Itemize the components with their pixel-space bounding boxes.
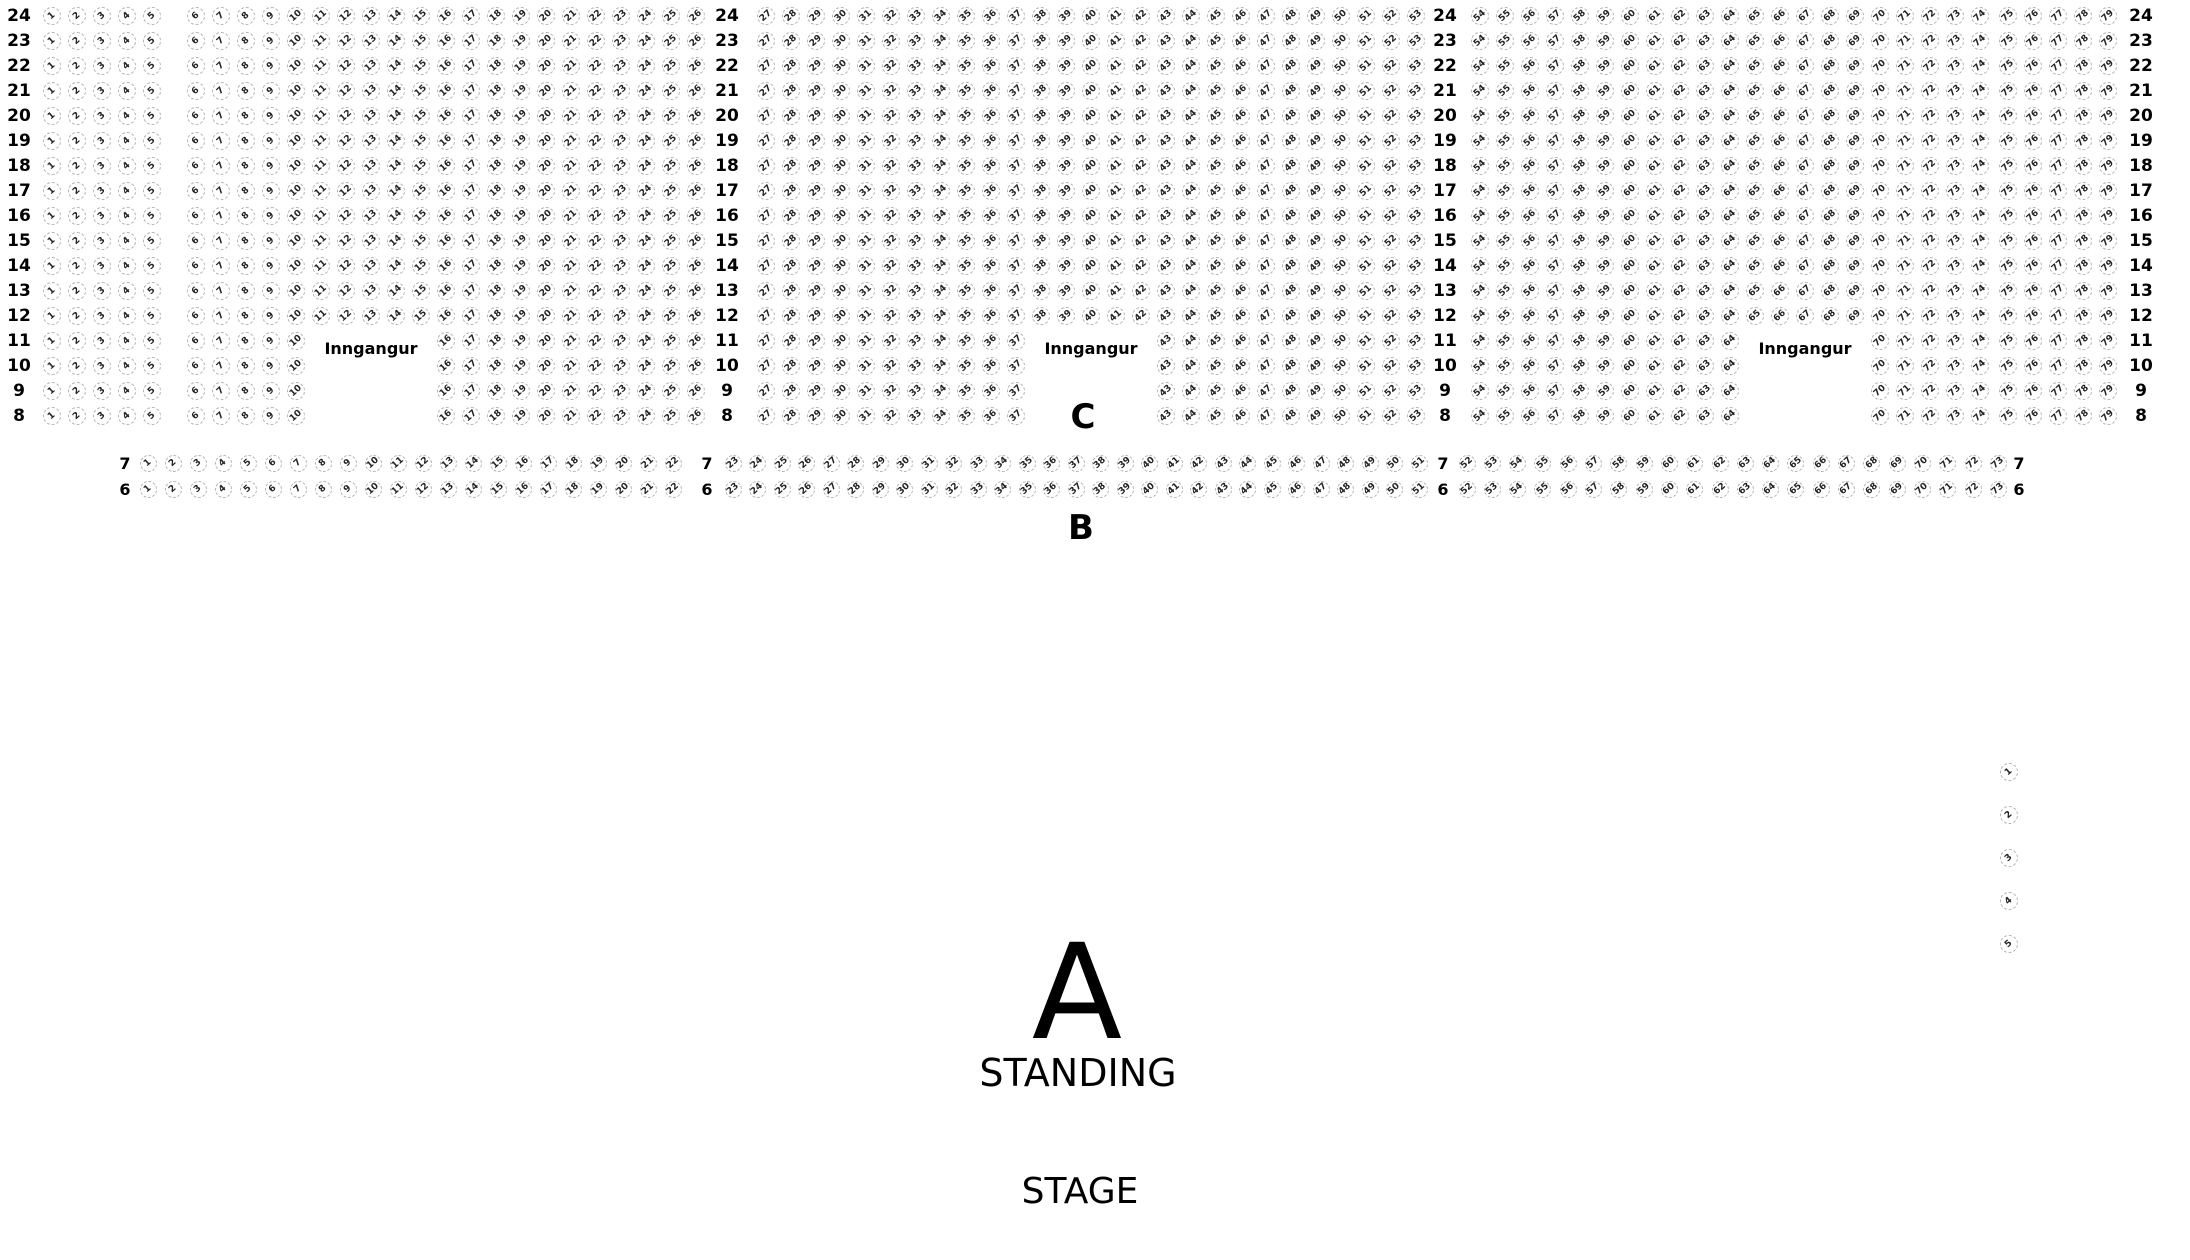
seat[interactable]: 65 xyxy=(1746,307,1764,325)
seat[interactable]: 26 xyxy=(687,182,705,200)
seat[interactable]: 37 xyxy=(1007,157,1025,175)
seat[interactable]: 45 xyxy=(1207,357,1225,375)
seat[interactable]: 72 xyxy=(1921,157,1939,175)
seat[interactable]: 25 xyxy=(662,182,680,200)
seat[interactable]: 9 xyxy=(262,182,280,200)
seat[interactable]: 43 xyxy=(1157,307,1175,325)
seat[interactable]: 17 xyxy=(540,455,557,472)
seat[interactable]: 6 xyxy=(187,32,205,50)
seat[interactable]: 3 xyxy=(93,207,111,225)
seat[interactable]: 34 xyxy=(932,232,950,250)
seat[interactable]: 59 xyxy=(1596,107,1614,125)
seat[interactable]: 41 xyxy=(1107,232,1125,250)
seat[interactable]: 69 xyxy=(1846,57,1864,75)
seat[interactable]: 53 xyxy=(1407,332,1425,350)
seat[interactable]: 66 xyxy=(1771,107,1789,125)
seat[interactable]: 15 xyxy=(412,32,430,50)
seat[interactable]: 24 xyxy=(637,307,655,325)
seat[interactable]: 65 xyxy=(1746,7,1764,25)
seat[interactable]: 25 xyxy=(662,282,680,300)
seat[interactable]: 27 xyxy=(757,407,775,425)
seat[interactable]: 73 xyxy=(1946,182,1964,200)
seat[interactable]: 39 xyxy=(1057,232,1075,250)
seat[interactable]: 77 xyxy=(2049,332,2067,350)
seat[interactable]: 7 xyxy=(212,232,230,250)
seat[interactable]: 52 xyxy=(1459,481,1476,498)
seat[interactable]: 12 xyxy=(337,307,355,325)
seat[interactable]: 32 xyxy=(882,107,900,125)
seat[interactable]: 23 xyxy=(612,207,630,225)
seat[interactable]: 56 xyxy=(1521,157,1539,175)
seat[interactable]: 4 xyxy=(118,132,136,150)
seat[interactable]: 53 xyxy=(1484,455,1501,472)
seat[interactable]: 19 xyxy=(512,57,530,75)
seat[interactable]: 71 xyxy=(1896,282,1914,300)
seat[interactable]: 76 xyxy=(2024,107,2042,125)
seat[interactable]: 48 xyxy=(1282,57,1300,75)
seat[interactable]: 75 xyxy=(1999,357,2017,375)
seat[interactable]: 10 xyxy=(287,7,305,25)
seat[interactable]: 49 xyxy=(1307,182,1325,200)
seat[interactable]: 22 xyxy=(665,455,682,472)
seat[interactable]: 27 xyxy=(757,207,775,225)
seat[interactable]: 4 xyxy=(118,157,136,175)
seat[interactable]: 36 xyxy=(982,7,1000,25)
seat[interactable]: 23 xyxy=(612,7,630,25)
seat[interactable]: 19 xyxy=(512,357,530,375)
seat[interactable]: 24 xyxy=(637,157,655,175)
seat[interactable]: 16 xyxy=(437,32,455,50)
seat[interactable]: 21 xyxy=(562,407,580,425)
seat[interactable]: 43 xyxy=(1157,7,1175,25)
seat[interactable]: 51 xyxy=(1357,232,1375,250)
seat[interactable]: 33 xyxy=(907,207,925,225)
seat[interactable]: 51 xyxy=(1357,57,1375,75)
seat[interactable]: 75 xyxy=(1999,7,2017,25)
seat[interactable]: 35 xyxy=(957,82,975,100)
seat[interactable]: 47 xyxy=(1257,7,1275,25)
seat[interactable]: 60 xyxy=(1621,232,1639,250)
seat[interactable]: 77 xyxy=(2049,7,2067,25)
seat[interactable]: 2 xyxy=(68,307,86,325)
seat[interactable]: 28 xyxy=(782,307,800,325)
seat[interactable]: 37 xyxy=(1007,57,1025,75)
seat[interactable]: 62 xyxy=(1671,282,1689,300)
seat[interactable]: 1 xyxy=(2000,763,2018,781)
seat[interactable]: 38 xyxy=(1032,157,1050,175)
seat[interactable]: 37 xyxy=(1007,257,1025,275)
seat[interactable]: 4 xyxy=(118,7,136,25)
seat[interactable]: 3 xyxy=(93,232,111,250)
seat[interactable]: 67 xyxy=(1796,307,1814,325)
seat[interactable]: 52 xyxy=(1382,7,1400,25)
seat[interactable]: 21 xyxy=(562,57,580,75)
seat[interactable]: 71 xyxy=(1896,307,1914,325)
seat[interactable]: 63 xyxy=(1696,32,1714,50)
seat[interactable]: 68 xyxy=(1821,232,1839,250)
seat[interactable]: 51 xyxy=(1357,207,1375,225)
seat[interactable]: 31 xyxy=(921,455,938,472)
seat[interactable]: 30 xyxy=(832,132,850,150)
seat[interactable]: 33 xyxy=(970,481,987,498)
seat[interactable]: 52 xyxy=(1382,407,1400,425)
seat[interactable]: 4 xyxy=(215,481,232,498)
seat[interactable]: 46 xyxy=(1232,382,1250,400)
seat[interactable]: 58 xyxy=(1571,157,1589,175)
seat[interactable]: 41 xyxy=(1107,157,1125,175)
seat[interactable]: 74 xyxy=(1971,282,1989,300)
seat[interactable]: 53 xyxy=(1407,407,1425,425)
seat[interactable]: 5 xyxy=(143,382,161,400)
seat[interactable]: 62 xyxy=(1671,332,1689,350)
seat[interactable]: 12 xyxy=(337,157,355,175)
seat[interactable]: 77 xyxy=(2049,282,2067,300)
seat[interactable]: 43 xyxy=(1157,57,1175,75)
seat[interactable]: 7 xyxy=(212,382,230,400)
seat[interactable]: 41 xyxy=(1107,7,1125,25)
seat[interactable]: 19 xyxy=(512,257,530,275)
seat[interactable]: 6 xyxy=(187,132,205,150)
seat[interactable]: 64 xyxy=(1721,182,1739,200)
seat[interactable]: 4 xyxy=(118,107,136,125)
seat[interactable]: 55 xyxy=(1496,282,1514,300)
seat[interactable]: 28 xyxy=(782,107,800,125)
seat[interactable]: 51 xyxy=(1357,82,1375,100)
seat[interactable]: 51 xyxy=(1357,257,1375,275)
seat[interactable]: 45 xyxy=(1207,382,1225,400)
seat[interactable]: 39 xyxy=(1057,32,1075,50)
seat[interactable]: 4 xyxy=(215,455,232,472)
seat[interactable]: 50 xyxy=(1332,357,1350,375)
seat[interactable]: 57 xyxy=(1546,282,1564,300)
seat[interactable]: 7 xyxy=(212,282,230,300)
seat[interactable]: 60 xyxy=(1621,382,1639,400)
seat[interactable]: 8 xyxy=(237,332,255,350)
seat[interactable]: 6 xyxy=(187,107,205,125)
seat[interactable]: 8 xyxy=(237,182,255,200)
seat[interactable]: 48 xyxy=(1282,357,1300,375)
seat[interactable]: 76 xyxy=(2024,407,2042,425)
seat[interactable]: 3 xyxy=(93,332,111,350)
seat[interactable]: 45 xyxy=(1207,82,1225,100)
seat[interactable]: 43 xyxy=(1157,132,1175,150)
seat[interactable]: 52 xyxy=(1382,382,1400,400)
seat[interactable]: 8 xyxy=(237,7,255,25)
seat[interactable]: 32 xyxy=(882,157,900,175)
seat[interactable]: 47 xyxy=(1257,207,1275,225)
seat[interactable]: 29 xyxy=(807,157,825,175)
seat[interactable]: 2 xyxy=(68,182,86,200)
seat[interactable]: 30 xyxy=(832,182,850,200)
seat[interactable]: 37 xyxy=(1007,307,1025,325)
seat[interactable]: 20 xyxy=(537,207,555,225)
seat[interactable]: 11 xyxy=(312,182,330,200)
seat[interactable]: 23 xyxy=(612,32,630,50)
seat[interactable]: 73 xyxy=(1946,157,1964,175)
seat[interactable]: 19 xyxy=(512,207,530,225)
seat[interactable]: 7 xyxy=(212,257,230,275)
seat[interactable]: 50 xyxy=(1332,157,1350,175)
seat[interactable]: 73 xyxy=(1946,82,1964,100)
seat[interactable]: 22 xyxy=(587,32,605,50)
seat[interactable]: 55 xyxy=(1496,7,1514,25)
seat[interactable]: 30 xyxy=(832,232,850,250)
seat[interactable]: 2 xyxy=(68,7,86,25)
seat[interactable]: 77 xyxy=(2049,257,2067,275)
seat[interactable]: 26 xyxy=(687,307,705,325)
seat[interactable]: 24 xyxy=(637,132,655,150)
seat[interactable]: 52 xyxy=(1382,232,1400,250)
seat[interactable]: 30 xyxy=(832,207,850,225)
seat[interactable]: 74 xyxy=(1971,7,1989,25)
seat[interactable]: 32 xyxy=(882,32,900,50)
seat[interactable]: 48 xyxy=(1282,82,1300,100)
seat[interactable]: 11 xyxy=(312,57,330,75)
seat[interactable]: 21 xyxy=(562,7,580,25)
seat[interactable]: 76 xyxy=(2024,232,2042,250)
seat[interactable]: 32 xyxy=(882,57,900,75)
seat[interactable]: 25 xyxy=(662,7,680,25)
seat[interactable]: 54 xyxy=(1471,357,1489,375)
seat[interactable]: 32 xyxy=(882,407,900,425)
seat[interactable]: 55 xyxy=(1496,157,1514,175)
seat[interactable]: 26 xyxy=(687,232,705,250)
seat[interactable]: 23 xyxy=(612,407,630,425)
seat[interactable]: 5 xyxy=(143,282,161,300)
seat[interactable]: 57 xyxy=(1546,132,1564,150)
seat[interactable]: 79 xyxy=(2099,82,2117,100)
seat[interactable]: 49 xyxy=(1307,407,1325,425)
seat[interactable]: 49 xyxy=(1307,232,1325,250)
seat[interactable]: 68 xyxy=(1821,282,1839,300)
seat[interactable]: 44 xyxy=(1182,207,1200,225)
seat[interactable]: 47 xyxy=(1257,282,1275,300)
seat[interactable]: 13 xyxy=(362,107,380,125)
seat[interactable]: 78 xyxy=(2074,382,2092,400)
seat[interactable]: 37 xyxy=(1068,455,1085,472)
seat[interactable]: 79 xyxy=(2099,332,2117,350)
seat[interactable]: 30 xyxy=(832,57,850,75)
seat[interactable]: 19 xyxy=(512,232,530,250)
seat[interactable]: 2 xyxy=(68,207,86,225)
seat[interactable]: 59 xyxy=(1596,57,1614,75)
seat[interactable]: 35 xyxy=(1019,455,1036,472)
seat[interactable]: 48 xyxy=(1337,481,1354,498)
seat[interactable]: 56 xyxy=(1521,257,1539,275)
seat[interactable]: 5 xyxy=(240,455,257,472)
seat[interactable]: 22 xyxy=(587,57,605,75)
seat[interactable]: 64 xyxy=(1721,82,1739,100)
seat[interactable]: 65 xyxy=(1746,57,1764,75)
seat[interactable]: 61 xyxy=(1646,282,1664,300)
seat[interactable]: 37 xyxy=(1007,132,1025,150)
seat[interactable]: 35 xyxy=(957,207,975,225)
seat[interactable]: 28 xyxy=(782,82,800,100)
seat[interactable]: 29 xyxy=(807,182,825,200)
seat[interactable]: 23 xyxy=(612,382,630,400)
seat[interactable]: 45 xyxy=(1264,481,1281,498)
seat[interactable]: 55 xyxy=(1496,107,1514,125)
seat[interactable]: 25 xyxy=(662,132,680,150)
seat[interactable]: 53 xyxy=(1407,257,1425,275)
seat[interactable]: 70 xyxy=(1871,157,1889,175)
seat[interactable]: 47 xyxy=(1257,57,1275,75)
seat[interactable]: 2 xyxy=(68,82,86,100)
seat[interactable]: 2 xyxy=(165,481,182,498)
seat[interactable]: 74 xyxy=(1971,307,1989,325)
seat[interactable]: 10 xyxy=(287,257,305,275)
seat[interactable]: 73 xyxy=(1946,382,1964,400)
seat[interactable]: 66 xyxy=(1771,182,1789,200)
seat[interactable]: 68 xyxy=(1821,207,1839,225)
seat[interactable]: 61 xyxy=(1646,107,1664,125)
seat[interactable]: 62 xyxy=(1671,382,1689,400)
seat[interactable]: 8 xyxy=(237,107,255,125)
seat[interactable]: 69 xyxy=(1846,132,1864,150)
seat[interactable]: 12 xyxy=(337,207,355,225)
seat[interactable]: 34 xyxy=(932,57,950,75)
seat[interactable]: 73 xyxy=(1946,257,1964,275)
seat[interactable]: 31 xyxy=(857,407,875,425)
seat[interactable]: 46 xyxy=(1232,132,1250,150)
seat[interactable]: 38 xyxy=(1032,7,1050,25)
seat[interactable]: 49 xyxy=(1307,307,1325,325)
seat[interactable]: 47 xyxy=(1313,481,1330,498)
seat[interactable]: 16 xyxy=(437,207,455,225)
seat[interactable]: 17 xyxy=(462,157,480,175)
seat[interactable]: 46 xyxy=(1232,7,1250,25)
seat[interactable]: 62 xyxy=(1671,107,1689,125)
seat[interactable]: 64 xyxy=(1762,481,1779,498)
seat[interactable]: 18 xyxy=(565,455,582,472)
seat[interactable]: 14 xyxy=(387,182,405,200)
seat[interactable]: 29 xyxy=(807,357,825,375)
seat[interactable]: 13 xyxy=(362,82,380,100)
seat[interactable]: 49 xyxy=(1307,282,1325,300)
seat[interactable]: 27 xyxy=(757,107,775,125)
seat[interactable]: 47 xyxy=(1257,307,1275,325)
seat[interactable]: 47 xyxy=(1257,132,1275,150)
seat[interactable]: 57 xyxy=(1546,182,1564,200)
seat[interactable]: 26 xyxy=(687,357,705,375)
seat[interactable]: 77 xyxy=(2049,357,2067,375)
seat[interactable]: 48 xyxy=(1282,332,1300,350)
seat[interactable]: 55 xyxy=(1496,182,1514,200)
seat[interactable]: 42 xyxy=(1132,182,1150,200)
seat[interactable]: 23 xyxy=(612,182,630,200)
seat[interactable]: 28 xyxy=(782,407,800,425)
seat[interactable]: 73 xyxy=(1946,332,1964,350)
seat[interactable]: 53 xyxy=(1407,82,1425,100)
seat[interactable]: 65 xyxy=(1746,82,1764,100)
seat[interactable]: 9 xyxy=(340,455,357,472)
seat[interactable]: 10 xyxy=(287,107,305,125)
seat[interactable]: 22 xyxy=(587,132,605,150)
seat[interactable]: 48 xyxy=(1282,257,1300,275)
seat[interactable]: 46 xyxy=(1288,481,1305,498)
seat[interactable]: 44 xyxy=(1182,282,1200,300)
seat[interactable]: 5 xyxy=(143,132,161,150)
seat[interactable]: 28 xyxy=(782,157,800,175)
seat[interactable]: 74 xyxy=(1971,157,1989,175)
seat[interactable]: 66 xyxy=(1771,132,1789,150)
seat[interactable]: 18 xyxy=(487,232,505,250)
seat[interactable]: 21 xyxy=(640,481,657,498)
seat[interactable]: 71 xyxy=(1896,257,1914,275)
seat[interactable]: 4 xyxy=(2000,892,2018,910)
seat[interactable]: 11 xyxy=(390,455,407,472)
seat[interactable]: 51 xyxy=(1357,157,1375,175)
seat[interactable]: 54 xyxy=(1471,57,1489,75)
seat[interactable]: 58 xyxy=(1571,282,1589,300)
seat[interactable]: 4 xyxy=(118,407,136,425)
seat[interactable]: 57 xyxy=(1546,32,1564,50)
seat[interactable]: 3 xyxy=(93,57,111,75)
seat[interactable]: 55 xyxy=(1496,132,1514,150)
seat[interactable]: 66 xyxy=(1771,57,1789,75)
seat[interactable]: 60 xyxy=(1621,32,1639,50)
seat[interactable]: 3 xyxy=(93,257,111,275)
seat[interactable]: 6 xyxy=(187,157,205,175)
seat[interactable]: 46 xyxy=(1232,307,1250,325)
seat[interactable]: 50 xyxy=(1386,455,1403,472)
seat[interactable]: 60 xyxy=(1621,107,1639,125)
seat[interactable]: 38 xyxy=(1032,107,1050,125)
seat[interactable]: 1 xyxy=(43,332,61,350)
seat[interactable]: 69 xyxy=(1846,7,1864,25)
seat[interactable]: 19 xyxy=(512,307,530,325)
seat[interactable]: 58 xyxy=(1571,107,1589,125)
seat[interactable]: 35 xyxy=(957,357,975,375)
seat[interactable]: 65 xyxy=(1787,481,1804,498)
seat[interactable]: 36 xyxy=(982,207,1000,225)
seat[interactable]: 73 xyxy=(1946,57,1964,75)
seat[interactable]: 45 xyxy=(1207,57,1225,75)
seat[interactable]: 30 xyxy=(832,332,850,350)
seat[interactable]: 31 xyxy=(857,82,875,100)
seat[interactable]: 55 xyxy=(1496,32,1514,50)
seat[interactable]: 17 xyxy=(462,207,480,225)
seat[interactable]: 33 xyxy=(970,455,987,472)
seat[interactable]: 4 xyxy=(118,332,136,350)
seat[interactable]: 1 xyxy=(43,57,61,75)
seat[interactable]: 35 xyxy=(957,382,975,400)
seat[interactable]: 14 xyxy=(465,455,482,472)
seat[interactable]: 9 xyxy=(262,232,280,250)
seat[interactable]: 33 xyxy=(907,282,925,300)
seat[interactable]: 70 xyxy=(1871,407,1889,425)
seat[interactable]: 54 xyxy=(1471,207,1489,225)
seat[interactable]: 56 xyxy=(1521,7,1539,25)
seat[interactable]: 22 xyxy=(587,232,605,250)
seat[interactable]: 64 xyxy=(1721,107,1739,125)
seat[interactable]: 62 xyxy=(1671,157,1689,175)
seat[interactable]: 56 xyxy=(1521,57,1539,75)
seat[interactable]: 5 xyxy=(143,32,161,50)
seat[interactable]: 9 xyxy=(340,481,357,498)
seat[interactable]: 30 xyxy=(896,455,913,472)
seat[interactable]: 17 xyxy=(462,407,480,425)
seat[interactable]: 63 xyxy=(1696,182,1714,200)
seat[interactable]: 20 xyxy=(537,282,555,300)
seat[interactable]: 37 xyxy=(1007,382,1025,400)
seat[interactable]: 51 xyxy=(1357,332,1375,350)
seat[interactable]: 75 xyxy=(1999,32,2017,50)
seat[interactable]: 27 xyxy=(757,357,775,375)
seat[interactable]: 34 xyxy=(994,481,1011,498)
seat[interactable]: 34 xyxy=(932,207,950,225)
seat[interactable]: 22 xyxy=(665,481,682,498)
